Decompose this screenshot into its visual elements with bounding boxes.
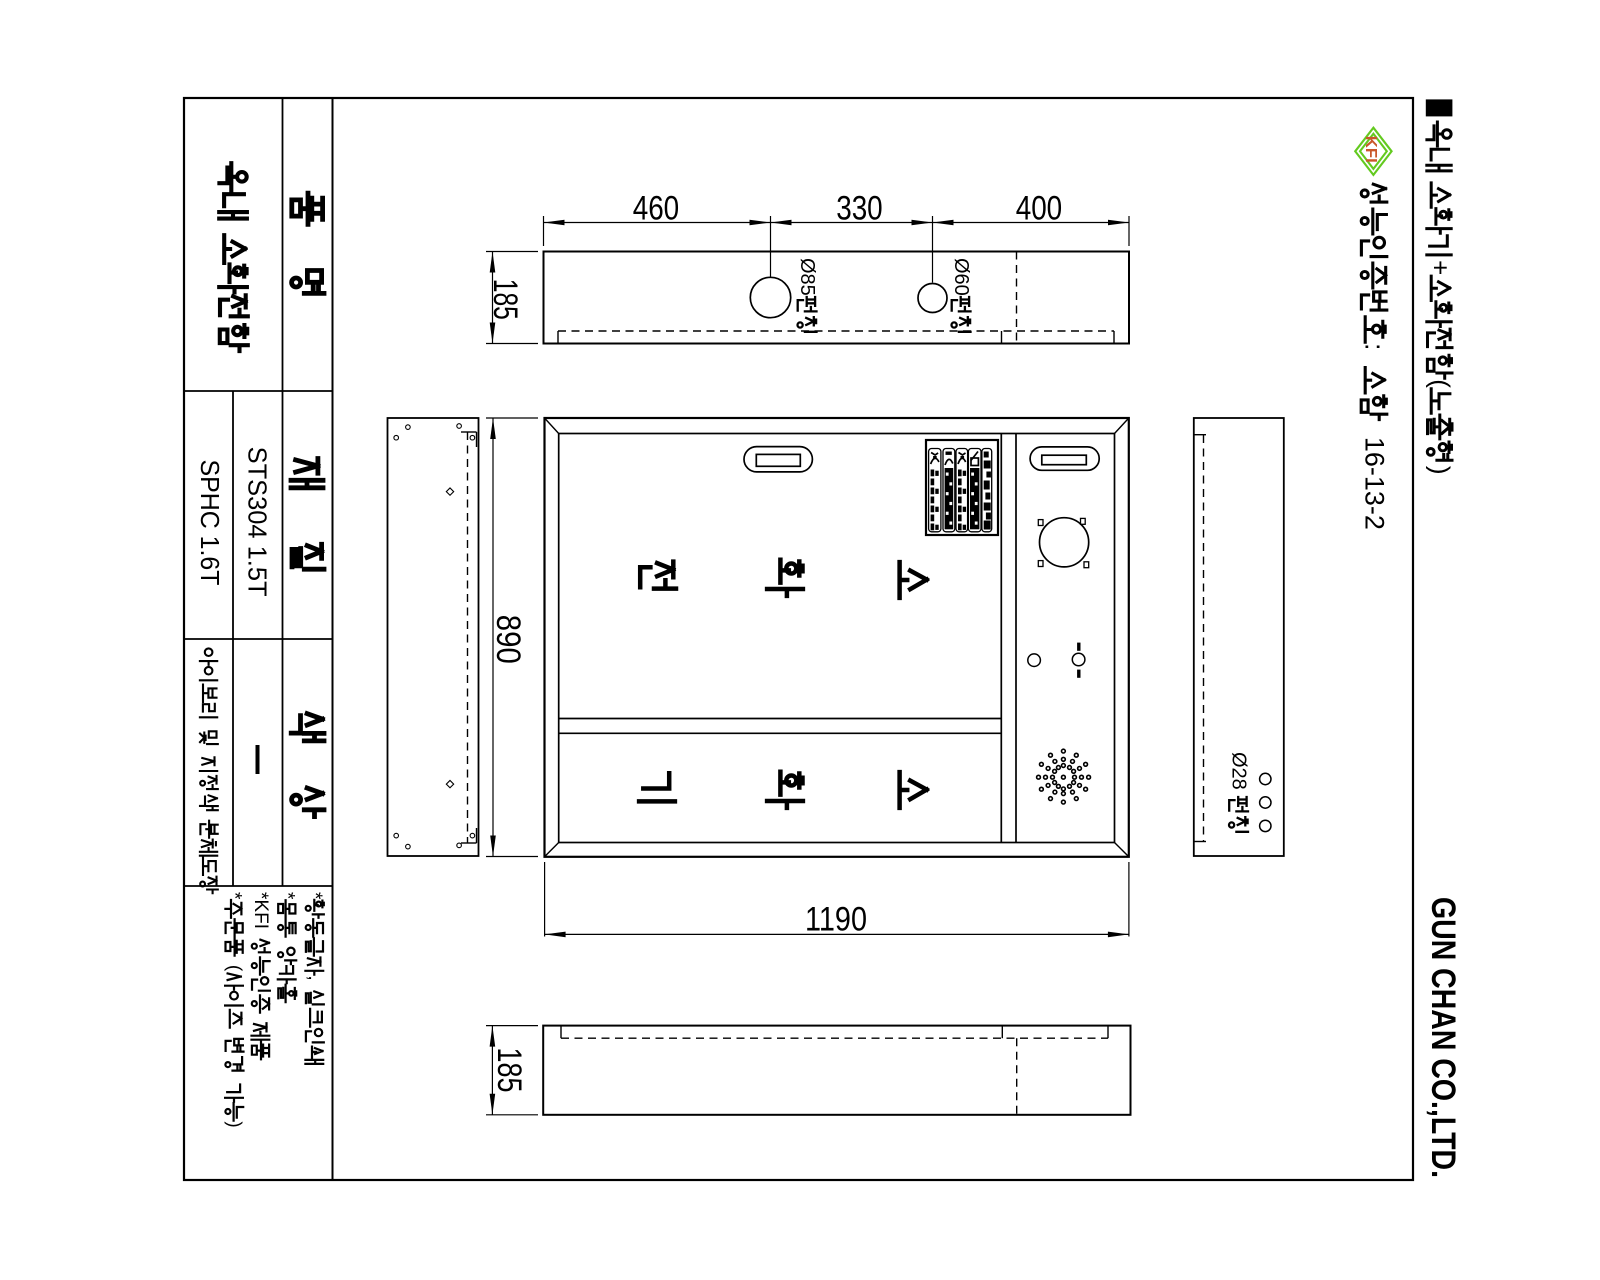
- svg-text:*: *: [276, 892, 297, 900]
- svg-text:SPHC 1.6T: SPHC 1.6T: [195, 460, 225, 586]
- svg-text:Ø85: Ø85: [796, 258, 818, 296]
- svg-text:): ): [224, 1121, 245, 1127]
- svg-text:460: 460: [633, 189, 680, 227]
- svg-text:16-13-2: 16-13-2: [1360, 437, 1390, 530]
- svg-text:*: *: [304, 892, 325, 900]
- svg-text:Ø60: Ø60: [950, 258, 972, 296]
- svg-text:330: 330: [836, 189, 883, 227]
- svg-text:KFI: KFI: [1362, 136, 1379, 163]
- svg-text:(: (: [1426, 379, 1456, 388]
- svg-text:Ø28: Ø28: [1227, 752, 1249, 790]
- svg-text:400: 400: [1016, 189, 1062, 227]
- svg-text::: :: [1360, 343, 1390, 351]
- svg-text:GUN CHAN CO.,LTD.: GUN CHAN CO.,LTD.: [1424, 897, 1462, 1178]
- svg-text:*: *: [224, 892, 245, 900]
- svg-text:+: +: [1426, 260, 1456, 275]
- svg-text:890: 890: [489, 615, 527, 664]
- svg-text:1190: 1190: [805, 900, 867, 938]
- svg-text:*KFI: *KFI: [250, 892, 271, 929]
- svg-text:185: 185: [490, 1048, 528, 1093]
- svg-text:(: (: [224, 965, 245, 972]
- svg-text:): ): [1426, 466, 1456, 475]
- svg-text:,: ,: [304, 975, 325, 980]
- svg-text:185: 185: [486, 279, 524, 320]
- svg-text:STS304 1.5T: STS304 1.5T: [243, 447, 273, 597]
